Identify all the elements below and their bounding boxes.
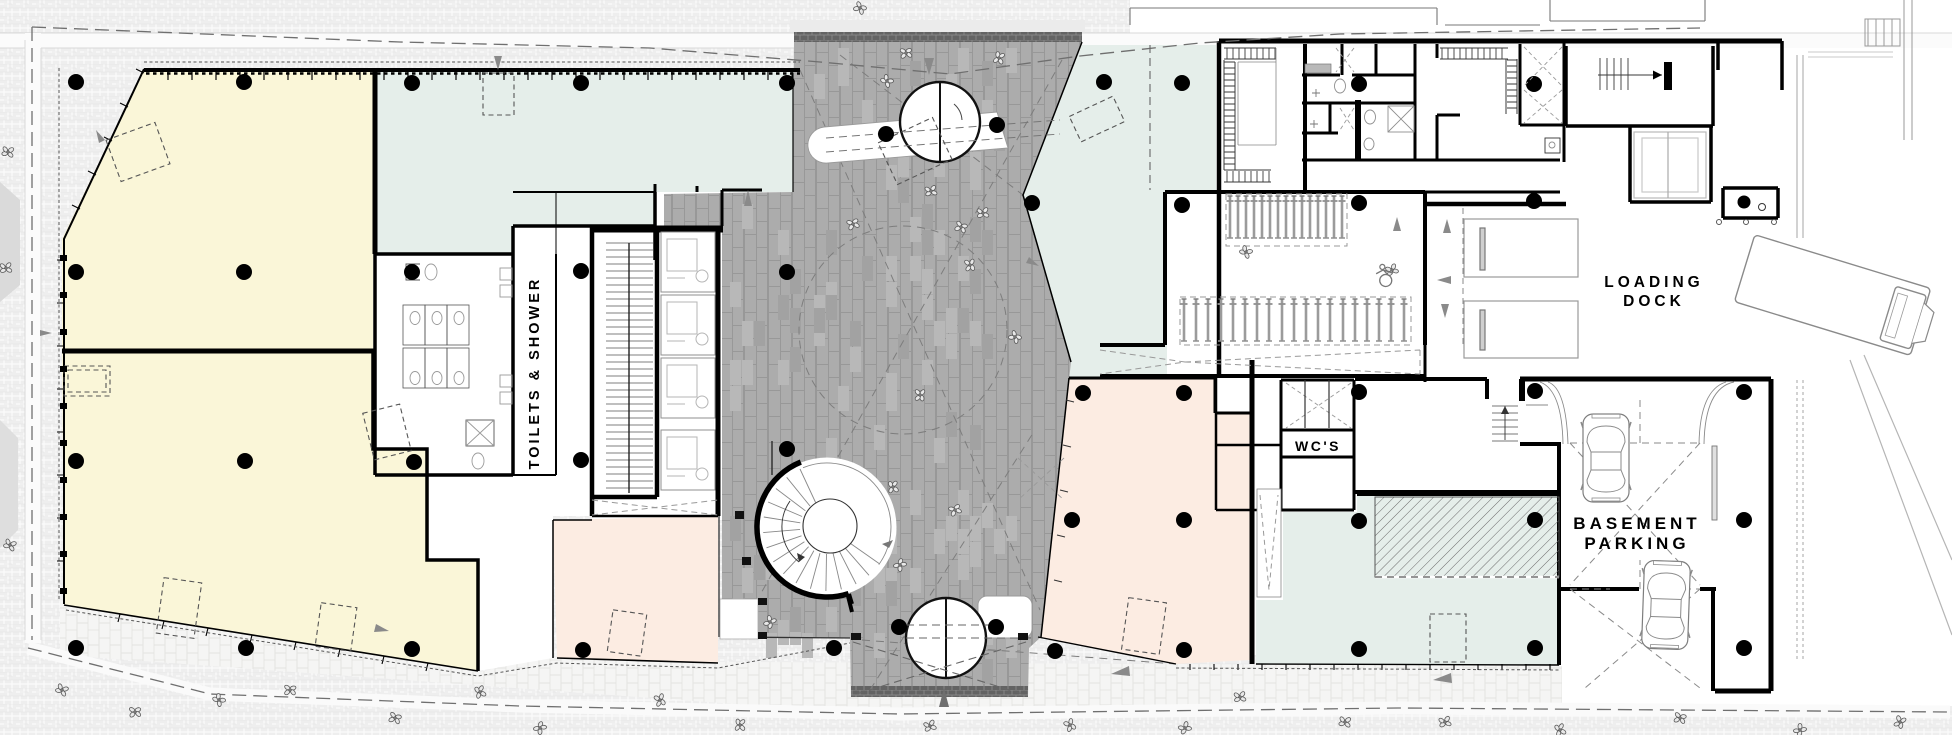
svg-text:WC'S: WC'S <box>1295 438 1341 454</box>
svg-text:PARKING: PARKING <box>1584 534 1689 553</box>
svg-text:LOADING: LOADING <box>1604 274 1703 291</box>
svg-text:BASEMENT: BASEMENT <box>1573 514 1700 533</box>
svg-text:DOCK: DOCK <box>1623 293 1685 310</box>
svg-text:TOILETS & SHOWER: TOILETS & SHOWER <box>527 277 543 470</box>
